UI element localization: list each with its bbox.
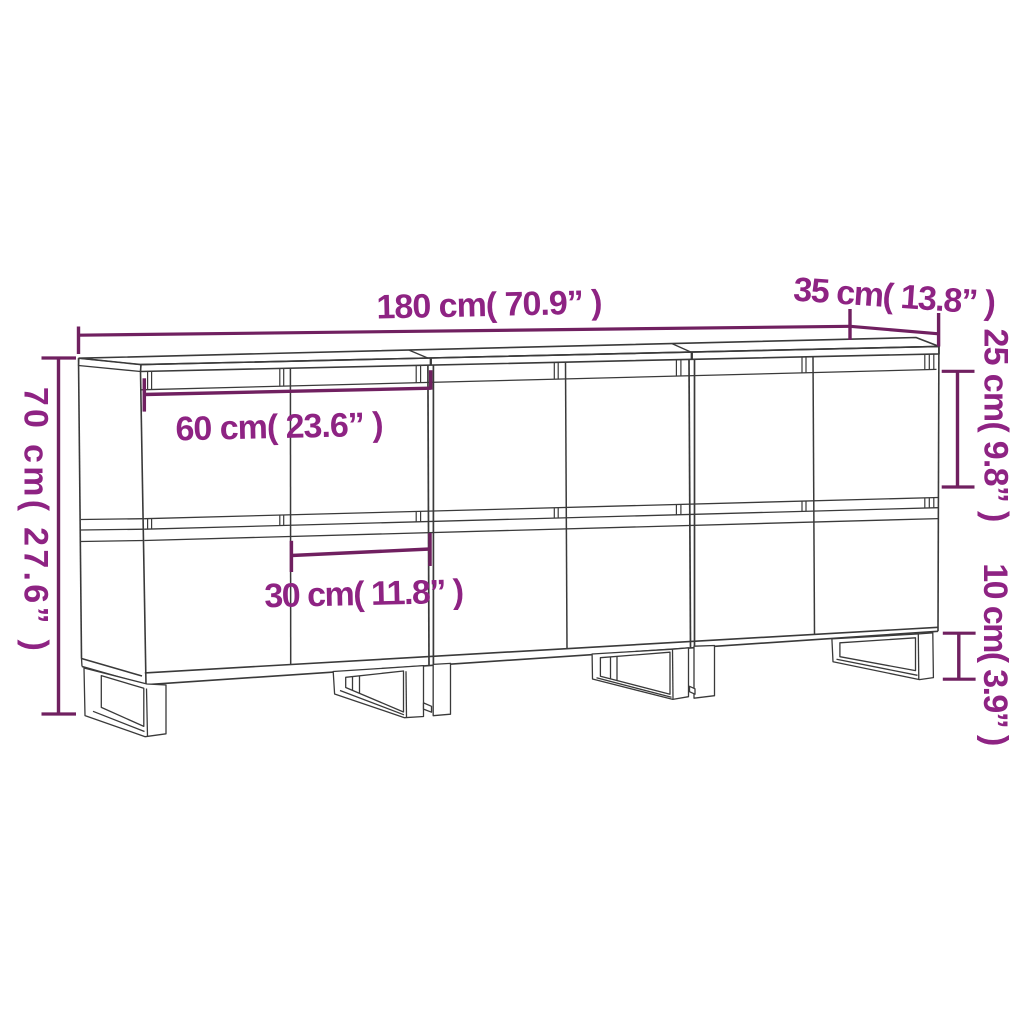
svg-text:60 cm( 23.6” ): 60 cm( 23.6” ) bbox=[175, 406, 383, 449]
svg-text:70 cm( 27.6” ): 70 cm( 27.6” ) bbox=[17, 387, 55, 654]
svg-text:25 cm( 9.8” ): 25 cm( 9.8” ) bbox=[977, 328, 1015, 521]
svg-text:30 cm( 11.8” ): 30 cm( 11.8” ) bbox=[264, 573, 463, 615]
svg-text:10 cm( 3.9” ): 10 cm( 3.9” ) bbox=[976, 563, 1014, 745]
svg-text:180 cm( 70.9” ): 180 cm( 70.9” ) bbox=[376, 283, 602, 326]
svg-text:35 cm( 13.8” ): 35 cm( 13.8” ) bbox=[792, 271, 996, 323]
